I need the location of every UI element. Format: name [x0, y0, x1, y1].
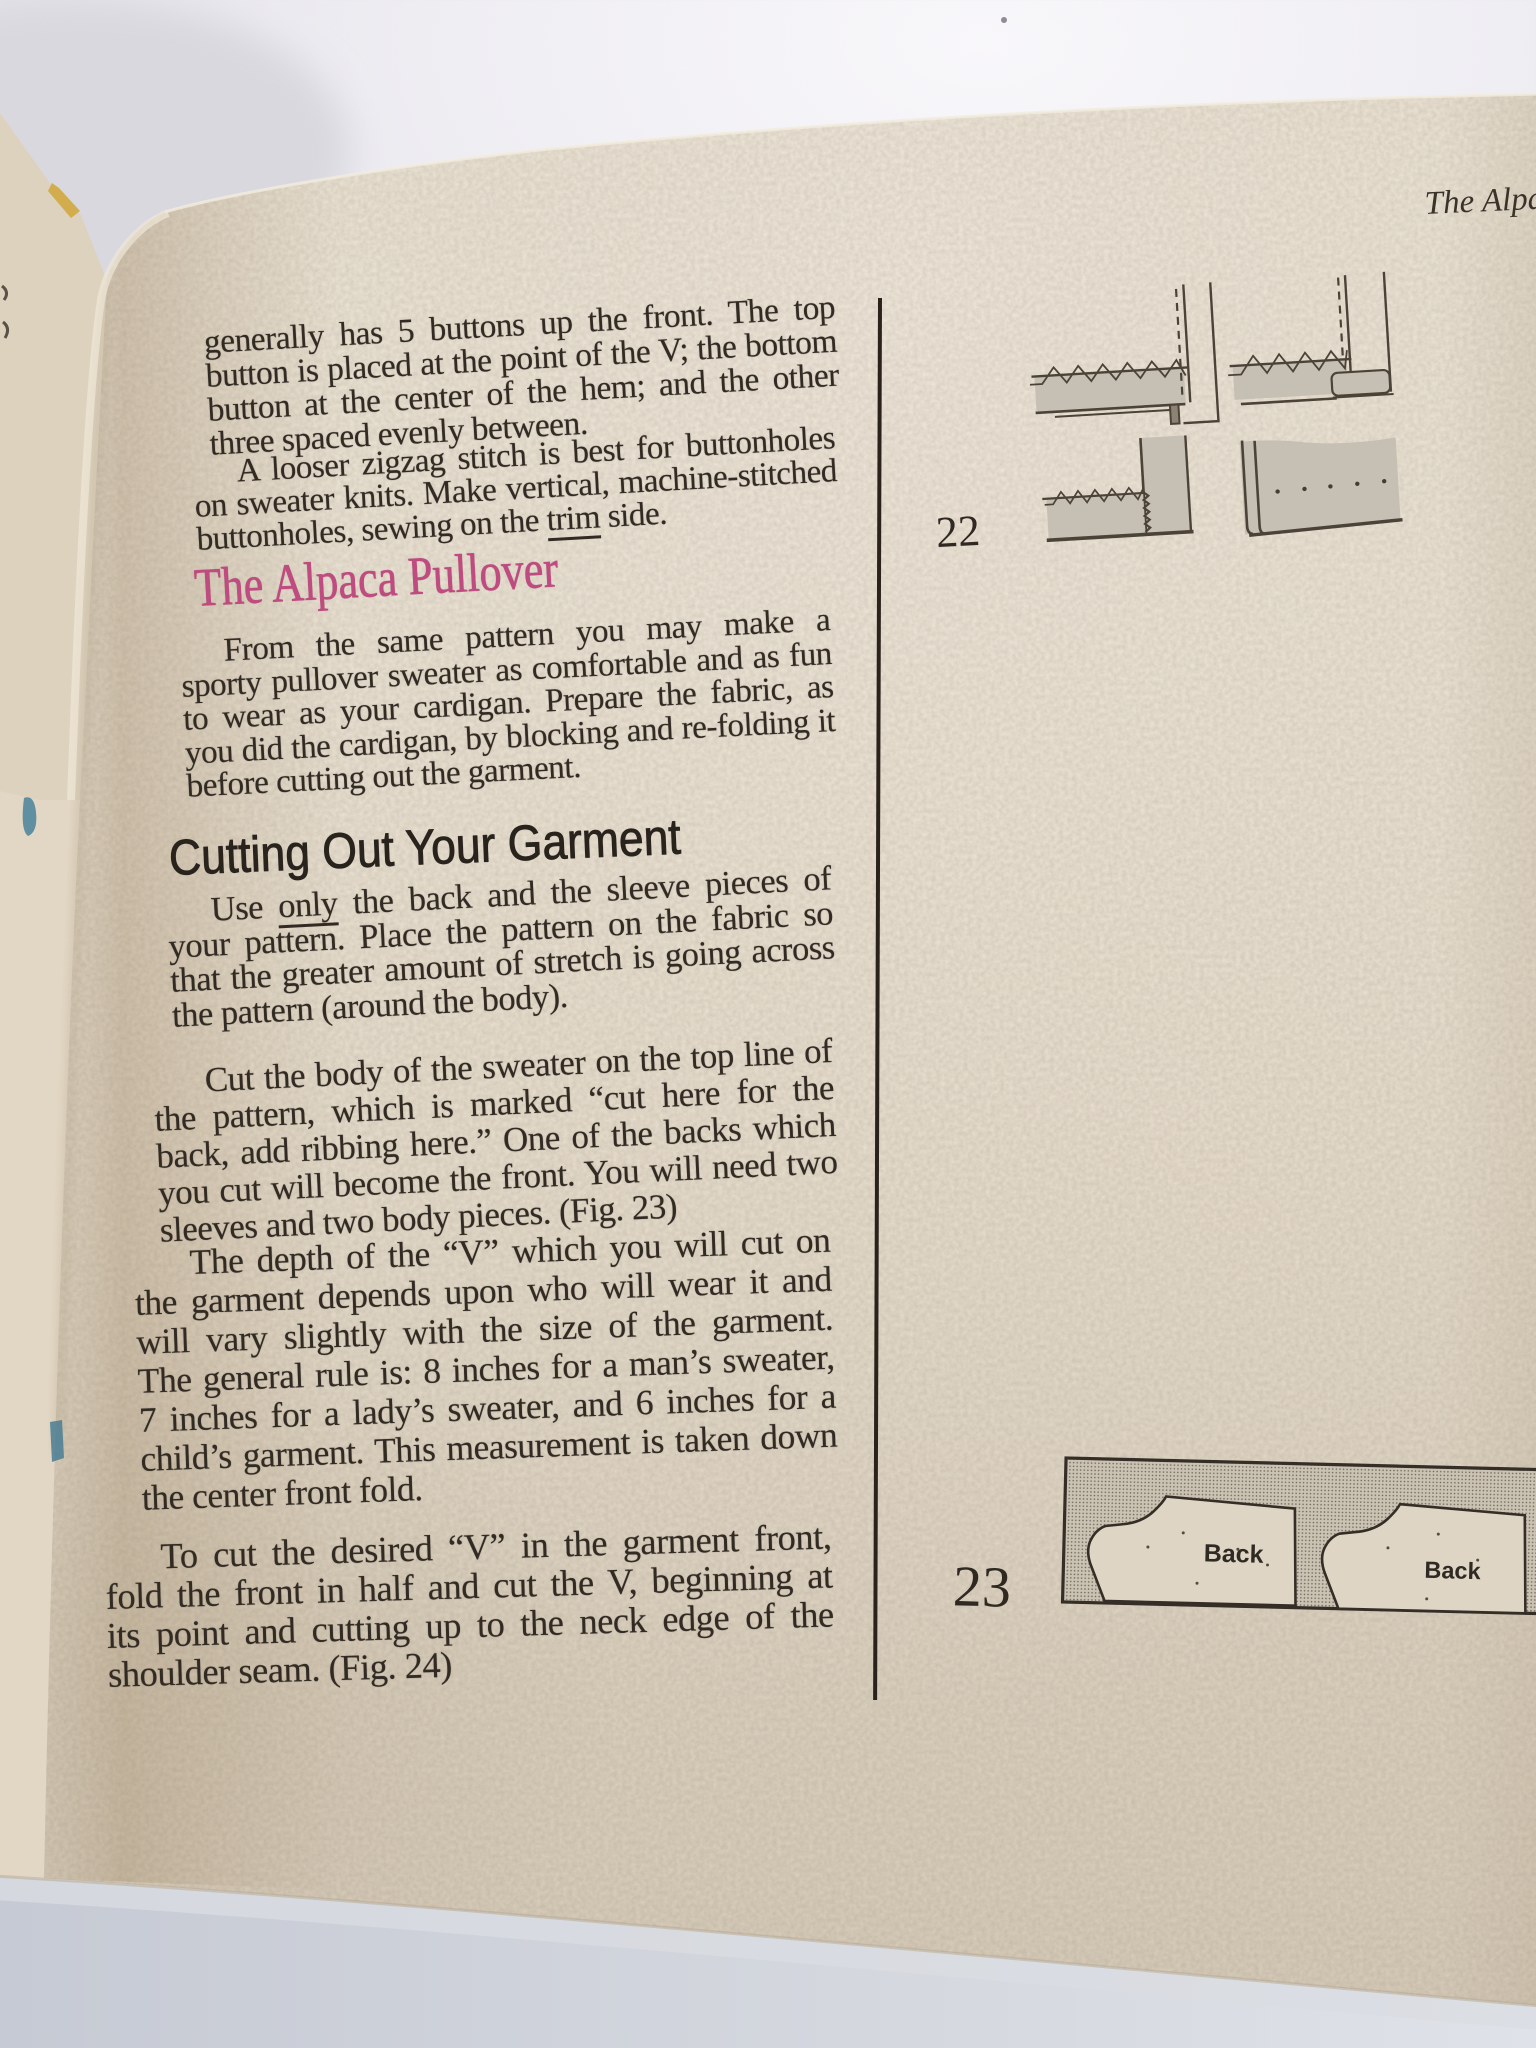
svg-text:Back: Back — [1203, 1539, 1264, 1568]
svg-text:Back: Back — [1424, 1557, 1482, 1584]
